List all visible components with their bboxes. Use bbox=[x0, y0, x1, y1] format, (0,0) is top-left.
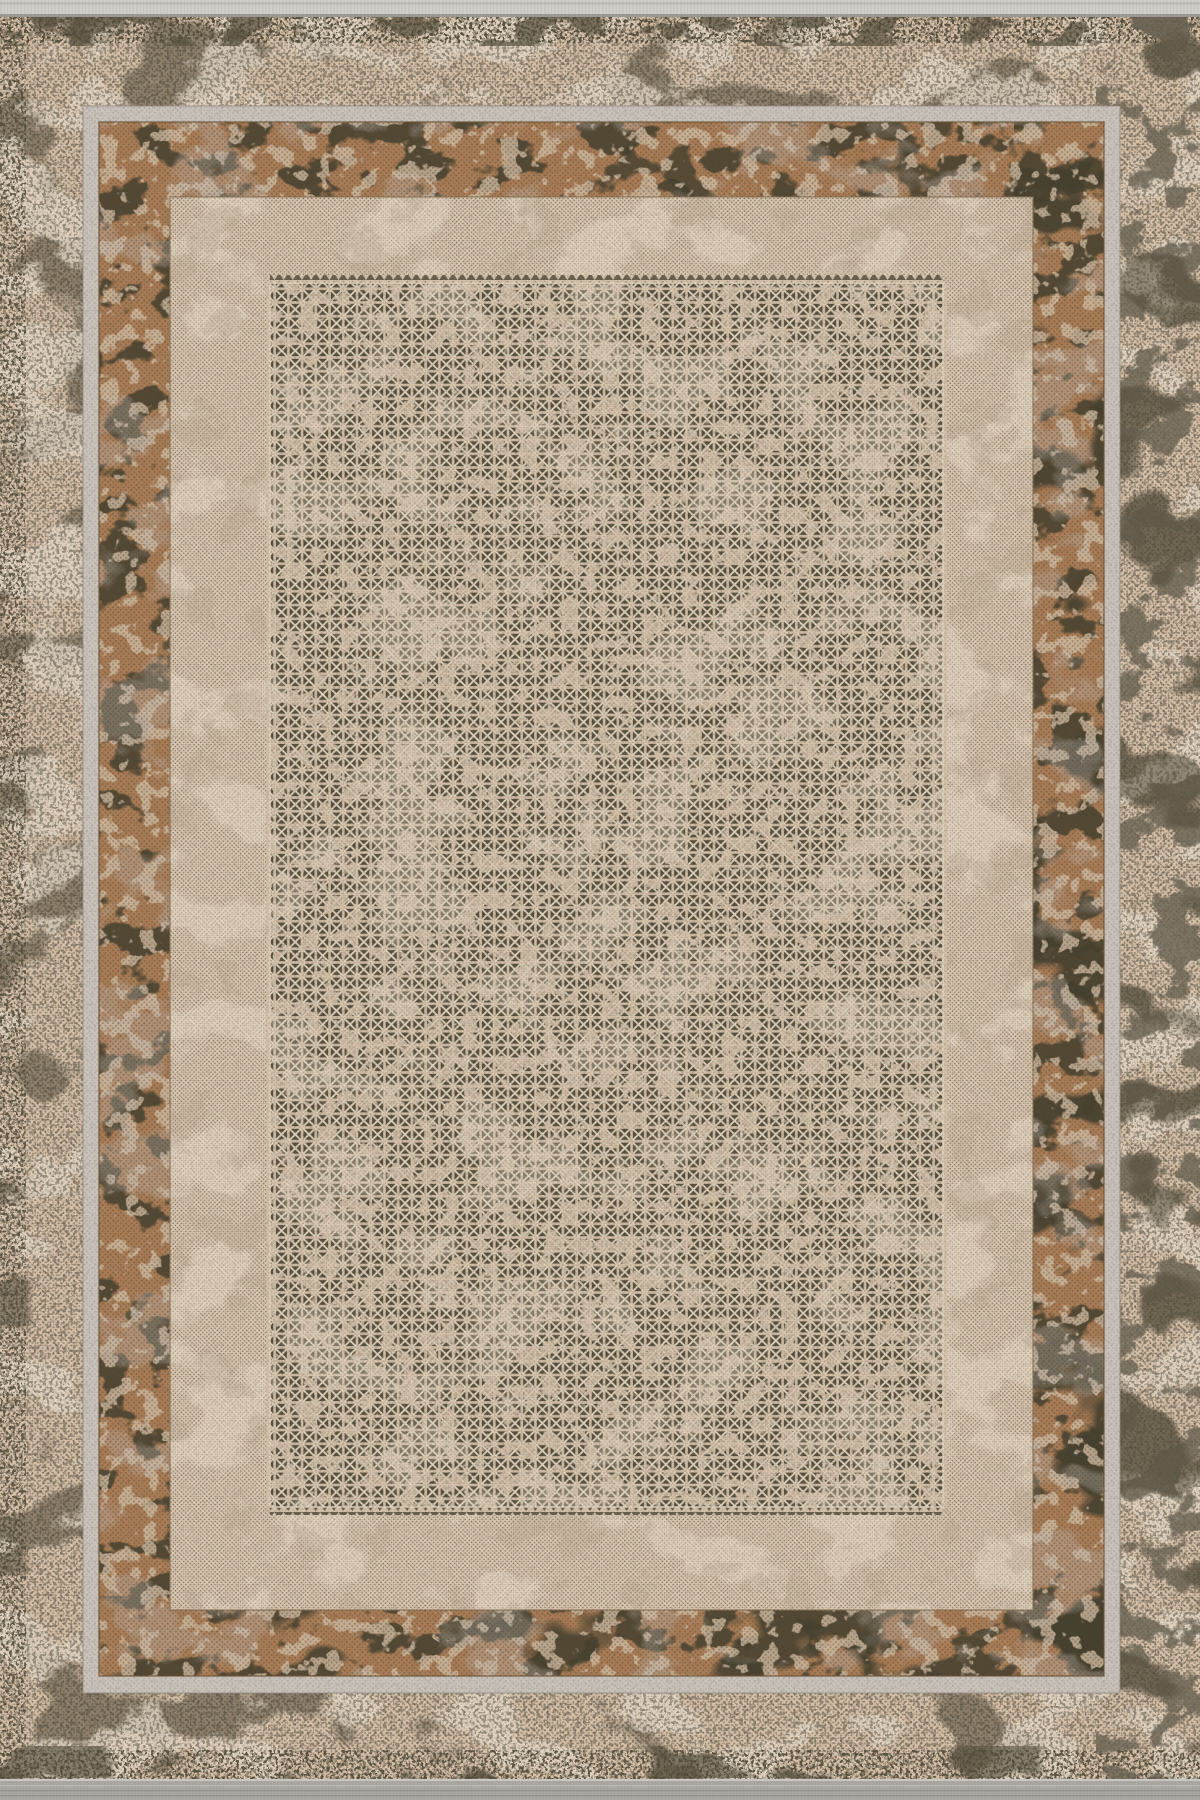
fringe-bottom bbox=[0, 1779, 1200, 1800]
fringe-top-shadow bbox=[0, 14, 1200, 17]
fringe-bottom-stripes bbox=[0, 1779, 1200, 1800]
fringe-top-stitch-line bbox=[0, 3, 1200, 5]
global-texture bbox=[0, 16, 1200, 1780]
global-grain bbox=[0, 16, 1200, 1780]
fringe-bottom-stitch-dark bbox=[0, 1790, 1200, 1791]
rug-product-photo: Top-down product photo of a distressed v… bbox=[0, 0, 1200, 1800]
rug-photo-canvas: Top-down product photo of a distressed v… bbox=[0, 0, 1200, 1800]
fringe-bottom-stitch-light bbox=[0, 1785, 1200, 1786]
fringe-bottom-highlight bbox=[0, 1779, 1200, 1781]
fringe-top bbox=[0, 0, 1200, 17]
fringe-bottom-stitch-dark2 bbox=[0, 1795, 1200, 1796]
